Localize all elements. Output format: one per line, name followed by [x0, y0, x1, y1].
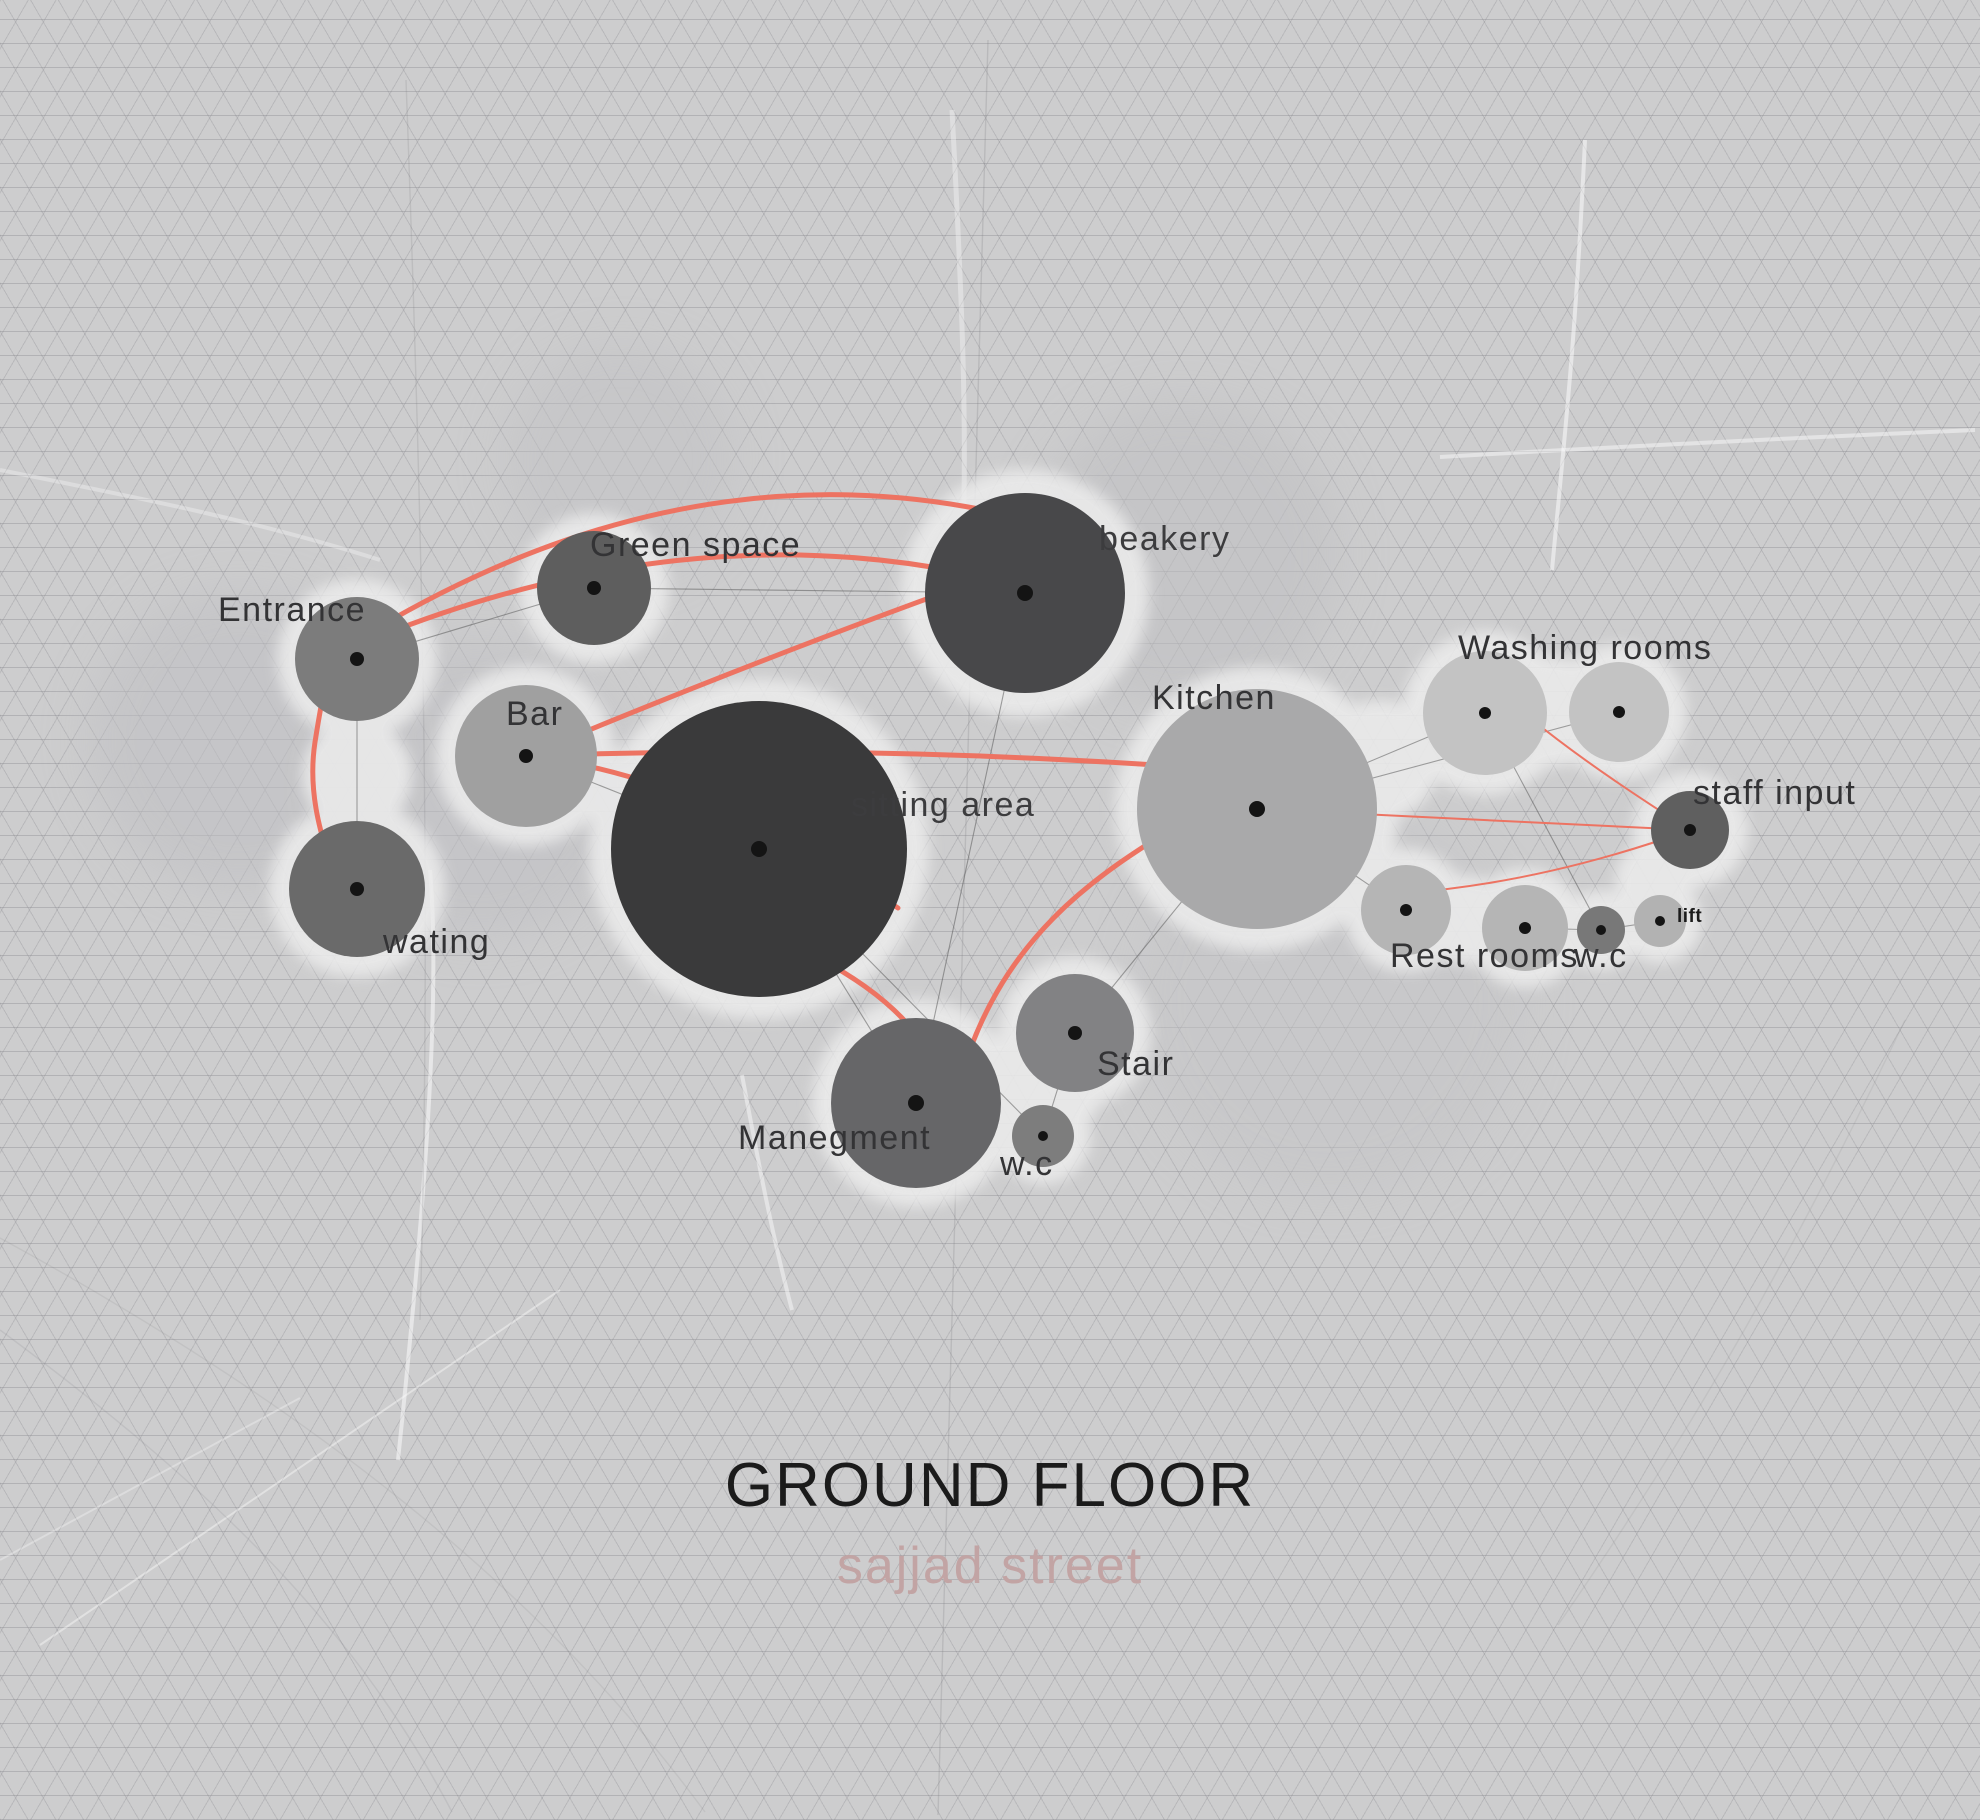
- node-label-kitchen: Kitchen: [1152, 681, 1276, 715]
- node-label-wc-center: w.c: [1000, 1147, 1054, 1181]
- node-label-manegment: Manegment: [738, 1121, 931, 1155]
- node-label-washing-rooms: Washing rooms: [1458, 631, 1712, 665]
- node-label-sitting-area: sitting area: [851, 788, 1035, 822]
- ground-floor-bubble-diagram: Entrance wating Green space Bar sitting …: [0, 0, 1980, 1820]
- node-label-bar: Bar: [506, 697, 563, 731]
- node-label-entrance: Entrance: [218, 593, 366, 627]
- page-title: GROUND FLOOR: [0, 1455, 1980, 1517]
- node-label-wc-right: w.c: [1574, 939, 1628, 973]
- node-label-stair: Stair: [1097, 1047, 1174, 1081]
- node-label-staff-input: staff input: [1693, 776, 1856, 810]
- node-label-green-space: Green space: [590, 528, 801, 562]
- node-label-beakery: beakery: [1099, 522, 1230, 556]
- node-label-lift: lift: [1677, 907, 1702, 926]
- node-label-wating: wating: [383, 925, 490, 959]
- page-subtitle: sajjad street: [0, 1540, 1980, 1592]
- node-label-rest-rooms: Rest rooms: [1390, 939, 1579, 973]
